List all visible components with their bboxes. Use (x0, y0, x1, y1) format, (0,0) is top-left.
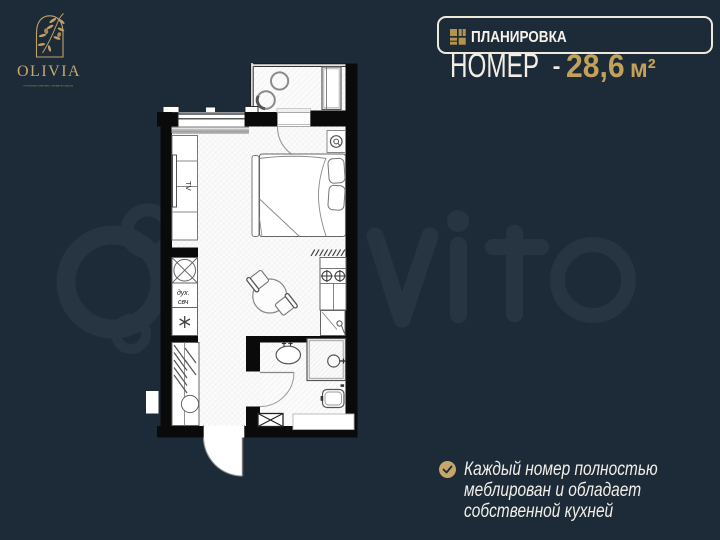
svg-text:дух.: дух. (177, 289, 190, 297)
svg-text:свч: свч (178, 299, 189, 306)
svg-text:ОТЕЛЬНЫЙ КОМПЛЕКС ПРЕМИУМ КЛАС: ОТЕЛЬНЫЙ КОМПЛЕКС ПРЕМИУМ КЛАССА (23, 85, 73, 88)
svg-text:TV: TV (184, 181, 193, 191)
